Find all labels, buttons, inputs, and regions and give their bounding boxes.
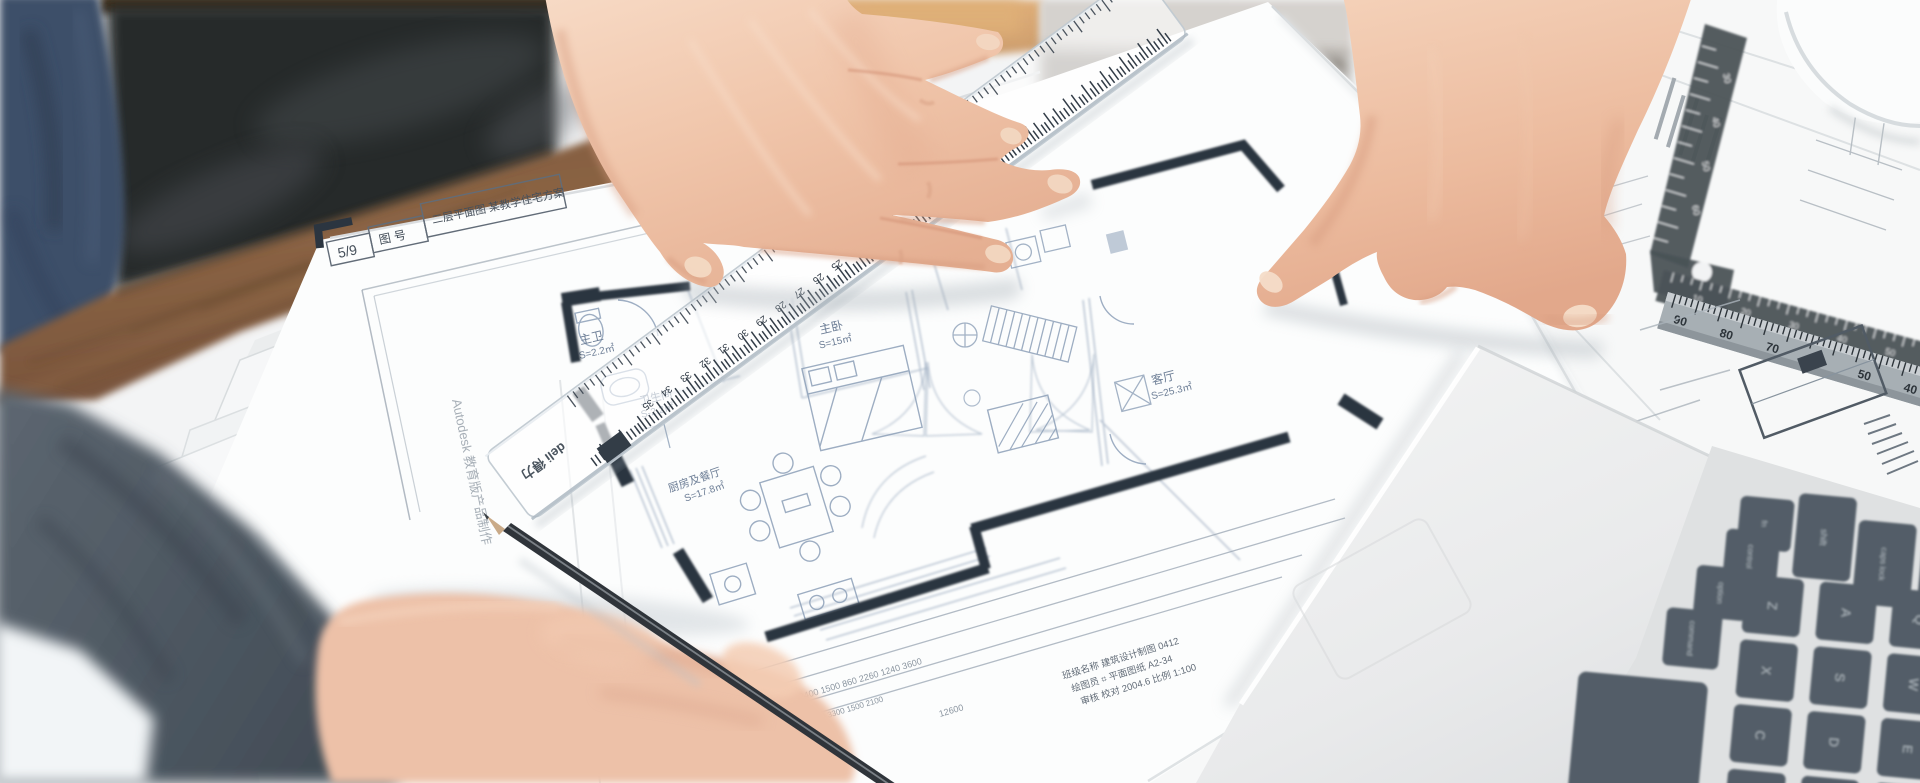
svg-text:fn: fn xyxy=(1759,520,1769,527)
svg-text:E: E xyxy=(1900,744,1916,754)
svg-text:C: C xyxy=(1752,730,1768,741)
svg-text:Q: Q xyxy=(1912,614,1920,625)
svg-text:W: W xyxy=(1906,678,1920,692)
svg-text:shift: shift xyxy=(1818,529,1830,547)
svg-text:S: S xyxy=(1832,673,1848,683)
svg-text:X: X xyxy=(1758,666,1774,676)
svg-text:D: D xyxy=(1826,737,1842,748)
svg-text:A: A xyxy=(1838,608,1854,618)
svg-text:Z: Z xyxy=(1765,601,1781,610)
